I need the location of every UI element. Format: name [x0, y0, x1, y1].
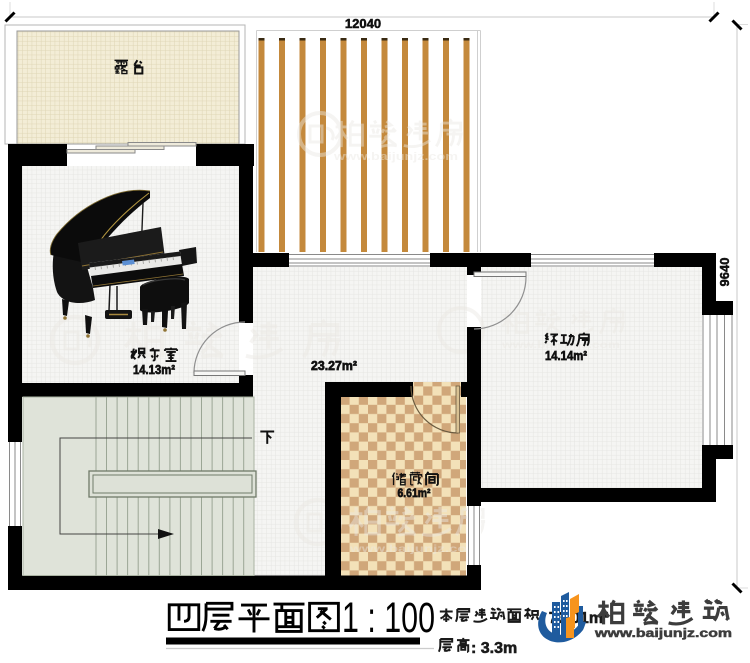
svg-text:6.61m²: 6.61m²: [398, 486, 431, 500]
svg-text:9640: 9640: [717, 258, 732, 287]
svg-text:12040: 12040: [345, 16, 381, 31]
svg-text:14.14m²: 14.14m²: [545, 349, 587, 363]
svg-text:www.baijunjz.com: www.baijunjz.com: [594, 628, 732, 640]
svg-text:www.baijunjz.com: www.baijunjz.com: [348, 544, 480, 555]
svg-text:1 : 100: 1 : 100: [342, 594, 435, 642]
svg-text:: 3.3m: : 3.3m: [471, 640, 517, 657]
svg-text:14.13m²: 14.13m²: [133, 363, 175, 377]
svg-text:www.baijunjz.com: www.baijunjz.com: [333, 151, 459, 163]
svg-text:23.27m²: 23.27m²: [311, 359, 357, 373]
